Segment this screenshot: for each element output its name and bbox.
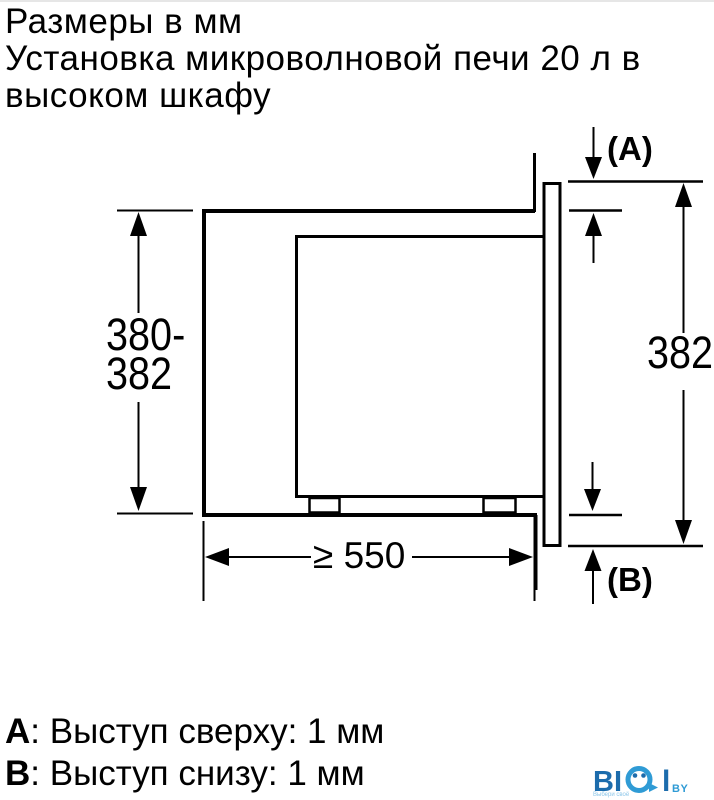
legend-item-b: B: Выступ снизу: 1 мм (5, 753, 384, 795)
dim-label-front-height: 382 (647, 333, 713, 372)
arrowhead-down (675, 520, 692, 544)
legend-item-a: A: Выступ сверху: 1 мм (5, 711, 384, 753)
arrowhead-right (509, 548, 533, 566)
arrowhead-down (584, 489, 601, 511)
arrowhead-left (205, 548, 229, 566)
legend-text-a: : Выступ сверху: 1 мм (30, 712, 384, 751)
legend-key-b: B (5, 754, 30, 793)
arrowhead-up (130, 212, 147, 236)
arrowhead-up (675, 183, 692, 207)
smiley-g-icon (628, 769, 658, 793)
microwave-foot-left (310, 498, 340, 513)
door-panel (544, 184, 560, 546)
dim-label-protrusion-top: (A) (607, 129, 653, 169)
logo-suffix: BY (672, 783, 688, 795)
installation-diagram (0, 0, 714, 800)
arrowhead-down (130, 487, 147, 511)
cabinet-outline (202, 153, 537, 590)
dim-label-niche-height: 380- 382 (106, 315, 185, 393)
logo-letter-l: l (662, 765, 670, 795)
microwave-body (295, 235, 544, 513)
arrowhead-down (585, 157, 602, 179)
legend: A: Выступ сверху: 1 мм B: Выступ снизу: … (5, 711, 384, 795)
arrowhead-up (585, 549, 602, 571)
microwave-foot-right (484, 498, 516, 513)
legend-key-a: A (5, 712, 30, 751)
arrowhead-up (585, 213, 602, 236)
dim-label-depth: ≥ 550 (313, 536, 405, 576)
logo-tagline: Выбери своё (593, 791, 629, 798)
dim-label-protrusion-bottom: (B) (607, 560, 653, 600)
legend-text-b: : Выступ снизу: 1 мм (30, 754, 364, 793)
